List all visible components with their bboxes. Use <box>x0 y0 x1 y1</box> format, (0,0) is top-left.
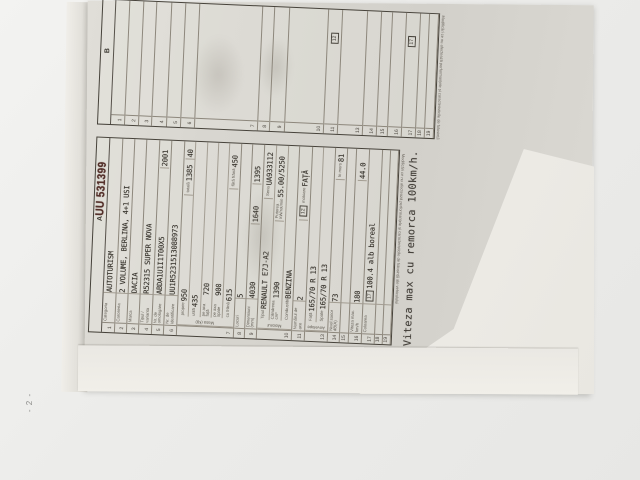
field-cell: 44.0 <box>357 149 367 181</box>
field-cell: 1395 <box>252 144 263 184</box>
row-number: 3 <box>127 323 138 333</box>
field-label: Tipul / varianta <box>139 294 152 324</box>
section-b-table: B 1234567891011121314151617171819 <box>97 0 440 139</box>
row-number: 5 <box>166 116 180 127</box>
field-value: 720 <box>202 283 212 296</box>
field-value: 1395 <box>253 166 263 183</box>
field-value: R52315 SUPER NOVA <box>142 223 154 293</box>
section-b-column: B 1234567891011121314151617171819 Modifi… <box>97 0 450 140</box>
row-number: 6 <box>181 117 195 128</box>
field-sublabel: cu frână <box>226 301 231 318</box>
field-value: 1390 <box>271 282 281 299</box>
field-cell: 40 <box>185 141 195 159</box>
row-number: 11 <box>292 330 304 340</box>
field-sublabel: Combustibil <box>284 299 289 321</box>
field-value: 450 <box>230 155 240 168</box>
row-number: 14 <box>327 332 339 342</box>
section-a-table: UU 531399 A 1CategoriaAUTOTURISM2Caroser… <box>88 136 400 345</box>
field-value: BENZINA <box>283 270 293 299</box>
field-value: 4030 <box>247 282 257 299</box>
field-label: Locuri <box>234 298 245 328</box>
row-number: 5 <box>152 324 164 334</box>
inline-row-number-box: 17 <box>408 36 416 47</box>
row-number: 9 <box>244 328 256 338</box>
field-label <box>375 304 383 334</box>
section-a-column: UU 531399 A 1CategoriaAUTOTURISM2Caroser… <box>88 136 444 347</box>
empty-cells <box>338 10 367 125</box>
field-value: 165/70 R 13 <box>318 264 329 310</box>
row-number: 15 <box>377 126 387 136</box>
field-cell: 2 <box>295 220 307 300</box>
row-number: 17 <box>401 127 415 138</box>
field-label: Motorul <box>258 320 292 330</box>
row-number: 4 <box>139 323 151 333</box>
underlying-sheet-bottom <box>78 345 578 394</box>
field-value: 100.4 alb boreal <box>365 223 377 289</box>
section-a-letter: A <box>96 216 103 221</box>
field-sublabel: Spate <box>320 309 325 322</box>
vehicle-identity-card: UU 531399 A 1CategoriaAUTOTURISM2Caroser… <box>88 0 450 347</box>
field-sublabel: Cilindreea cm³ <box>271 298 281 320</box>
table-row: 7Masa (kg)proprie950totală138540utilă435… <box>177 141 242 337</box>
inline-row-number-box: 17 <box>365 291 373 302</box>
field-sublabel: fără frână <box>232 167 237 187</box>
row-number: 6 <box>164 325 176 335</box>
section-b-letter: B <box>104 48 111 53</box>
page-number: - 2 - <box>25 393 34 412</box>
field-sublabel: proprie <box>181 301 186 316</box>
field-label: Nivel sonor dB(A) <box>328 302 341 332</box>
field-label: Nr. de identificare <box>165 295 178 325</box>
field-value: 2 <box>295 296 304 301</box>
field-label <box>340 302 349 332</box>
inline-row-number-box: 12 <box>330 33 338 44</box>
row-number: 2 <box>125 115 139 126</box>
field-sublabel: Tipul <box>261 309 266 320</box>
row-number: 11 <box>324 123 338 134</box>
field-label: Marca <box>128 293 140 323</box>
row-number: 8 <box>258 120 270 130</box>
field-label: Nr. de omologare <box>152 294 165 324</box>
field-sublabel: în mers <box>338 162 343 178</box>
field-value: 615 <box>224 289 234 302</box>
field-label: Caroseria <box>115 292 128 322</box>
row-number: 2 <box>115 322 127 332</box>
row-number: 16 <box>387 126 401 137</box>
field-sublabel: totală <box>186 181 191 193</box>
row-number: 13 <box>305 331 327 342</box>
field-sublabel: pe axa spate <box>212 296 222 318</box>
field-cell: 12motoareFAȚĂ <box>299 146 311 220</box>
field-value: 950 <box>179 289 189 302</box>
field-value: DACIA <box>130 272 140 293</box>
row-number: 13 <box>338 124 363 135</box>
field-sublabel: pe axa față <box>201 295 211 317</box>
field-value: ABDA1U1I1T00X5 <box>155 236 167 294</box>
inline-row-number-box: 12 <box>299 206 307 217</box>
field-value: 1385 <box>184 165 194 182</box>
row-number: 4 <box>152 116 166 127</box>
trailer-speed-stamp: Viteza max cu remorca 100km/h. <box>403 150 420 346</box>
field-sublabel: utilă <box>192 307 197 317</box>
row-number: 8 <box>234 328 244 338</box>
field-value: 165/70 R 13 <box>307 266 318 312</box>
row-number: 16 <box>349 333 361 343</box>
field-cell: 17 <box>404 13 417 127</box>
field-sublabel: motoare <box>302 187 307 205</box>
field-value: 40 <box>185 149 194 158</box>
field-value: FAȚĂ <box>300 170 310 187</box>
row-number: 19 <box>425 128 434 138</box>
field-value: 5 <box>236 294 245 299</box>
field-group: proprie950totală138540utilă435pe axa faț… <box>178 141 241 318</box>
field-value: UA933112 <box>265 152 275 185</box>
field-value: 180 <box>352 290 362 303</box>
field-label: Numărul de axe <box>293 300 306 330</box>
field-cell: 12 <box>327 10 340 124</box>
row-number: 18 <box>415 127 424 137</box>
field-cell: totală1385 <box>184 159 195 195</box>
field-value: 55.00/5250 <box>276 156 287 198</box>
row-number: 17 <box>362 333 374 343</box>
row-number: 18 <box>374 334 382 344</box>
row-number: 1 <box>102 322 114 332</box>
row-number: 10 <box>257 329 291 340</box>
row-number: 10 <box>284 122 323 134</box>
field-label: Dimensiuni (mm) <box>245 298 258 328</box>
row-number: 3 <box>139 115 152 126</box>
field-value: 2001 <box>160 150 170 167</box>
field-label: Categoria <box>102 292 115 322</box>
field-value: AUTOTURISM <box>105 251 116 293</box>
row-number: 15 <box>340 332 349 342</box>
field-value: 44.0 <box>358 162 368 179</box>
field-sublabel: Față <box>309 311 314 322</box>
field-value: 81 <box>336 154 345 163</box>
field-label <box>383 304 391 334</box>
row-number: 9 <box>270 121 284 132</box>
row-number: 14 <box>363 125 377 136</box>
row-number: 19 <box>383 334 391 344</box>
field-cell: în mers81 <box>336 148 346 180</box>
row-number: 1 <box>111 114 125 125</box>
field-value: 73 <box>330 294 339 303</box>
field-value: UU1R5231513088973 <box>167 225 179 295</box>
field-cell: fără frână450 <box>229 143 240 189</box>
field-label: Culoarea <box>362 303 375 333</box>
field-value: 900 <box>213 283 223 296</box>
field-label: Anvelope <box>305 322 327 332</box>
field-cell: 2001 <box>160 140 170 168</box>
field-value: 435 <box>190 295 200 308</box>
field-label: Viteza max. km/h <box>349 303 362 333</box>
